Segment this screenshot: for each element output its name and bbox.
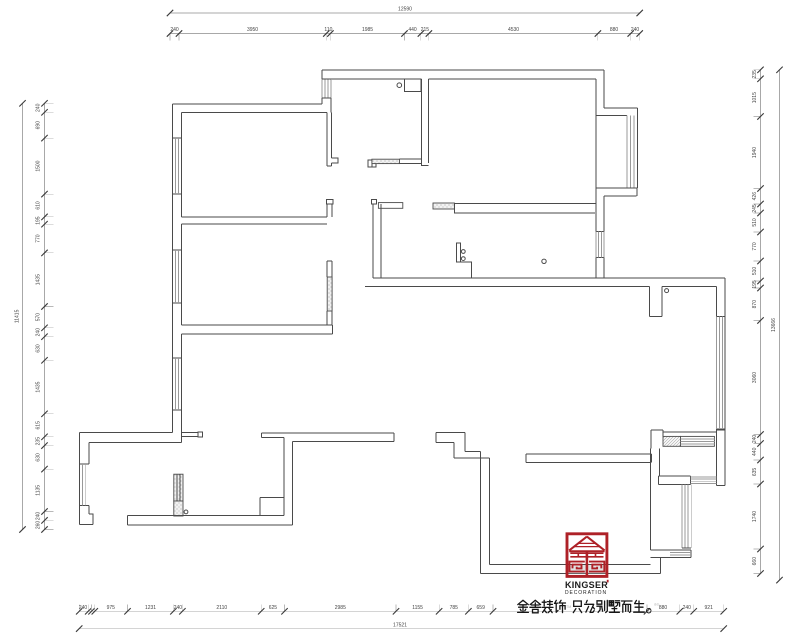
svg-text:240: 240 — [174, 605, 183, 611]
svg-text:195: 195 — [752, 280, 758, 289]
svg-text:610: 610 — [36, 201, 42, 210]
svg-text:921: 921 — [705, 605, 714, 611]
svg-text:615: 615 — [36, 421, 42, 430]
svg-text:440: 440 — [408, 27, 417, 33]
svg-text:635: 635 — [752, 468, 758, 477]
svg-text:975: 975 — [107, 605, 116, 611]
svg-text:770: 770 — [36, 234, 42, 243]
svg-text:240: 240 — [752, 435, 758, 444]
svg-text:659: 659 — [477, 605, 486, 611]
svg-text:510: 510 — [752, 218, 758, 227]
svg-text:DECORATION: DECORATION — [565, 590, 607, 596]
svg-text:1015: 1015 — [752, 92, 758, 103]
svg-text:440: 440 — [752, 447, 758, 456]
svg-text:770: 770 — [752, 242, 758, 251]
svg-text:630: 630 — [36, 453, 42, 462]
svg-text:240: 240 — [631, 27, 640, 33]
svg-text:235: 235 — [36, 437, 42, 446]
svg-text:1435: 1435 — [36, 381, 42, 392]
svg-text:1940: 1940 — [752, 147, 758, 158]
svg-text:17521: 17521 — [393, 622, 407, 628]
svg-text:1500: 1500 — [36, 160, 42, 171]
svg-text:785: 785 — [450, 605, 459, 611]
svg-text:260: 260 — [36, 521, 42, 530]
svg-text:215: 215 — [421, 27, 430, 33]
svg-text:240: 240 — [683, 605, 692, 611]
svg-text:660: 660 — [752, 557, 758, 566]
svg-text:1231: 1231 — [145, 605, 156, 611]
svg-text:240: 240 — [36, 103, 42, 112]
svg-text:195: 195 — [36, 216, 42, 225]
svg-text:1135: 1135 — [36, 485, 42, 496]
svg-text:240: 240 — [79, 605, 88, 611]
svg-text:426: 426 — [752, 192, 758, 201]
svg-text:630: 630 — [36, 344, 42, 353]
svg-text:3060: 3060 — [752, 372, 758, 383]
svg-text:240: 240 — [36, 328, 42, 337]
svg-text:870: 870 — [752, 300, 758, 309]
svg-text:240: 240 — [36, 512, 42, 521]
svg-text:3950: 3950 — [247, 27, 258, 33]
svg-text:1435: 1435 — [36, 274, 42, 285]
svg-text:KINGSER: KINGSER — [565, 580, 608, 590]
svg-text:570: 570 — [36, 313, 42, 322]
svg-text:1155: 1155 — [412, 605, 423, 611]
svg-text:1985: 1985 — [362, 27, 373, 33]
svg-text:2985: 2985 — [335, 605, 346, 611]
svg-text:690: 690 — [36, 121, 42, 130]
svg-text:11415: 11415 — [15, 309, 21, 323]
svg-text:880: 880 — [659, 605, 668, 611]
svg-text:13666: 13666 — [771, 318, 777, 332]
svg-text:245: 245 — [752, 204, 758, 213]
svg-text:625: 625 — [269, 605, 278, 611]
svg-text:880: 880 — [610, 27, 619, 33]
svg-text:12590: 12590 — [398, 7, 412, 13]
svg-text:240: 240 — [170, 27, 179, 33]
svg-text:510: 510 — [752, 267, 758, 276]
svg-text:4530: 4530 — [508, 27, 519, 33]
svg-text:1740: 1740 — [752, 511, 758, 522]
svg-text:235: 235 — [752, 70, 758, 79]
svg-text:®®: ®® — [654, 603, 660, 607]
svg-text:2110: 2110 — [216, 605, 227, 611]
svg-text:TM: TM — [566, 605, 571, 609]
svg-text:110: 110 — [324, 27, 332, 33]
